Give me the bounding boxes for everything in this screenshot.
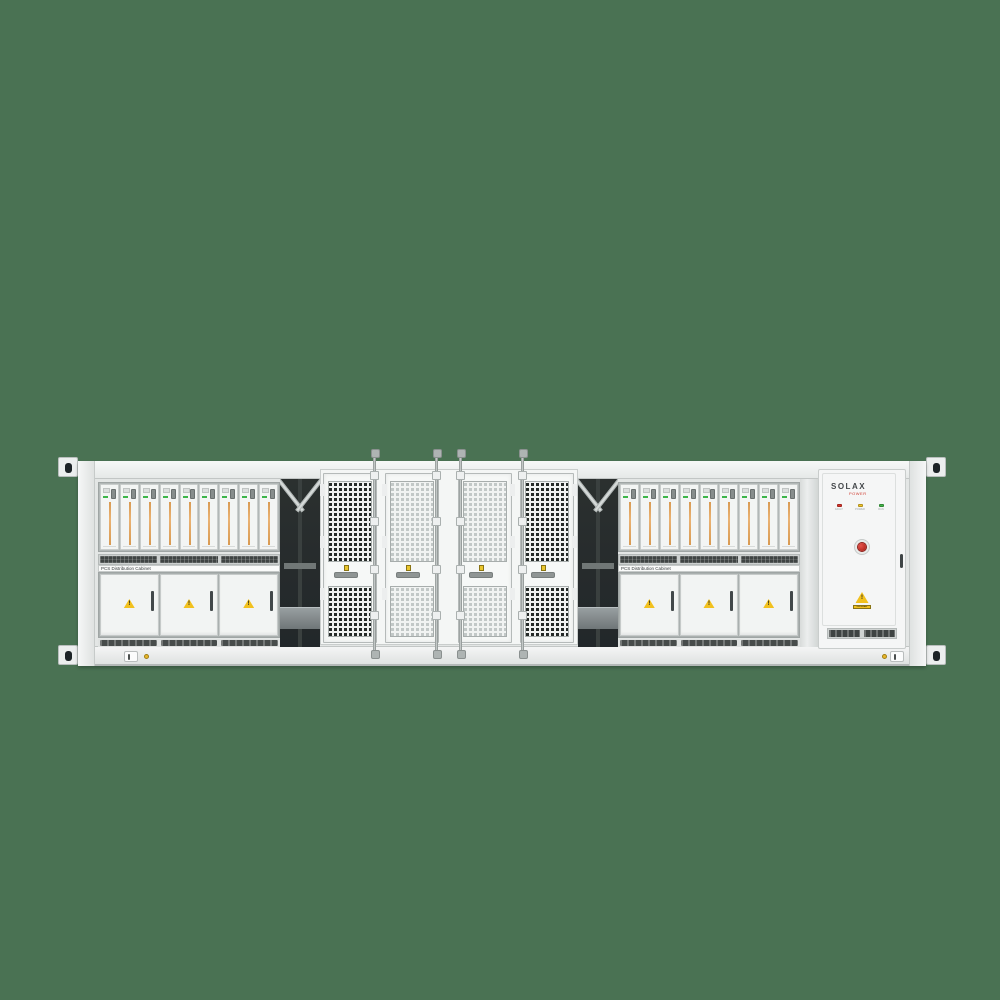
module-handle [691,489,696,499]
door-latch [324,562,376,586]
casting-hole-icon [65,463,72,473]
latch-handle [532,573,554,577]
battery-module [140,484,159,550]
module-status-led [262,496,267,498]
corner-casting [926,457,946,477]
interior-gap [578,479,618,647]
module-label [202,488,209,493]
warning-triangle-icon: ! [184,599,195,608]
cabinet-bottom-grille [827,628,897,639]
battery-module [759,484,778,550]
battery-module [100,484,119,550]
battery-module [199,484,218,550]
rod-bracket [370,611,379,620]
status-indicator: POWER [852,504,868,511]
module-label [623,488,630,493]
module-stripe [768,502,770,545]
module-handle [190,489,195,499]
module-label [663,488,670,493]
module-handle [790,489,795,499]
mesh-door [323,473,377,643]
rod-bracket [518,517,527,526]
module-handle [270,489,275,499]
rack-vent-grille [618,554,800,565]
cross-member [284,563,316,569]
cabinet-name-label: PCS Distribution Cabinet [618,565,800,572]
corner-casting [58,457,78,477]
panel-filler [800,479,818,647]
vent-segment [100,640,157,646]
module-label [722,488,729,493]
module-stripe [709,502,711,545]
door-handle-icon [671,591,674,611]
brand-logo-sub: POWER [849,491,867,496]
cabinet-door: ! [100,574,159,636]
module-handle [171,489,176,499]
battery-module [739,484,758,550]
mesh-panel [328,586,372,637]
door-hinges [382,484,387,632]
rod-bracket [456,517,465,526]
ground-point-icon [882,654,887,659]
module-handle [131,489,136,499]
module-handle [230,489,235,499]
warning-triangle-icon: ! [644,599,655,608]
mesh-panel [390,586,434,637]
rod-bracket [456,611,465,620]
vent-segment [620,556,677,563]
module-status-led [762,496,767,498]
door-handle-slot [900,554,903,568]
battery-module [660,484,679,550]
mesh-door [520,473,574,643]
access-plate [890,651,904,662]
latch-handle [335,573,357,577]
door-handle-icon [151,591,154,611]
door-latch [459,562,511,586]
cabinet-door: ! [160,574,219,636]
module-handle [651,489,656,499]
module-stripe [208,502,210,545]
distribution-cabinet-doors: !!! [618,572,800,638]
mesh-panel [525,586,569,637]
mesh-panel [525,481,569,562]
cabinet-door: ! [739,574,798,636]
access-plate [124,651,138,662]
brand-logo: SOLAX [831,482,866,491]
module-status-led [722,496,727,498]
door-hinges [572,484,577,632]
indicator-label: POWER [853,507,867,510]
corner-casting [926,645,946,665]
plate-latch-icon [894,654,896,660]
module-stripe [129,502,131,545]
battery-module [719,484,738,550]
door-lock-rod [373,453,376,655]
vent-segment [741,556,798,563]
vent-segment [741,640,798,646]
warning-sticker-icon [344,565,349,571]
latch-handle [470,573,492,577]
battery-module [160,484,179,550]
cabinet-name-label: PCS Distribution Cabinet [98,565,280,572]
module-status-led [123,496,128,498]
module-stripe [728,502,730,545]
module-stripe [109,502,111,545]
module-handle [631,489,636,499]
cable-duct [578,607,618,629]
mesh-panel [463,586,507,637]
module-stripe [748,502,750,545]
module-label [143,488,150,493]
cabinet-door: ! [620,574,679,636]
module-status-led [202,496,207,498]
door-lock-rod [459,453,462,655]
door-latch [521,562,573,586]
module-label [782,488,789,493]
module-handle [151,489,156,499]
module-status-led [222,496,227,498]
container-right-post [909,461,926,666]
mesh-door [385,473,439,643]
module-label [262,488,269,493]
module-label [703,488,710,493]
rod-bracket [518,565,527,574]
door-lock-rod [521,453,524,655]
module-status-led [663,496,668,498]
module-status-led [163,496,168,498]
solax-control-cabinet: SOLAX POWER FAULTPOWERRUN ! DANGER [818,469,906,649]
danger-label: DANGER [853,605,871,609]
interior-gap [280,479,320,647]
module-label [643,488,650,493]
module-handle [111,489,116,499]
module-status-led [703,496,708,498]
warning-sticker-icon [541,565,546,571]
battery-module [779,484,798,550]
battery-module [680,484,699,550]
indicator-row: FAULTPOWERRUN [831,504,889,511]
module-handle [671,489,676,499]
module-stripe [149,502,151,545]
door-handle-icon [790,591,793,611]
container-bottom-rail [78,646,926,666]
rod-bracket [370,565,379,574]
vent-segment [100,556,157,563]
module-rack [98,482,280,552]
module-handle [770,489,775,499]
module-stripe [248,502,250,545]
module-status-led [782,496,787,498]
door-hinges [320,484,325,632]
vent-segment [864,630,895,637]
distribution-cabinet-doors: !!! [98,572,280,638]
estop-red-cap-icon [858,543,866,551]
door-handle-icon [730,591,733,611]
module-handle [730,489,735,499]
module-stripe [228,502,230,545]
battery-module [180,484,199,550]
module-stripe [169,502,171,545]
rod-bracket [432,517,441,526]
vent-segment [221,640,278,646]
rod-bracket [432,611,441,620]
rod-bracket [370,471,379,480]
module-status-led [242,496,247,498]
warning-triangle-icon: ! [856,592,869,603]
rod-bracket [370,517,379,526]
left-pcs-rack-section: PCS Distribution Cabinet !!! [98,482,280,647]
module-label [683,488,690,493]
ground-point-icon [144,654,149,659]
vent-segment [160,556,217,563]
rod-bracket [432,471,441,480]
cross-member [582,563,614,569]
warning-triangle-icon: ! [763,599,774,608]
module-handle [710,489,715,499]
rack-vent-grille [98,554,280,565]
casting-hole-icon [65,651,72,661]
module-label [242,488,249,493]
module-label [183,488,190,493]
module-label [222,488,229,493]
module-status-led [103,496,108,498]
mesh-door [458,473,512,643]
warning-triangle-icon: ! [243,599,254,608]
mesh-panel [463,481,507,562]
indicator-label: RUN [874,507,888,510]
door-handle-icon [270,591,273,611]
module-status-led [143,496,148,498]
rod-bracket [456,471,465,480]
module-stripe [649,502,651,545]
casting-hole-icon [933,463,940,473]
high-voltage-warning: ! DANGER [852,586,872,609]
status-indicator: RUN [873,504,889,511]
module-status-led [183,496,188,498]
door-lock-rod [435,453,438,655]
battery-module [219,484,238,550]
cabinet-door: ! [219,574,278,636]
battery-module [700,484,719,550]
battery-module [259,484,278,550]
door-handle-icon [210,591,213,611]
status-indicator: FAULT [831,504,847,511]
under-cabinet-vent [98,639,280,647]
module-stripe [629,502,631,545]
cable-duct [280,607,320,629]
rod-bracket [456,565,465,574]
battery-module [239,484,258,550]
module-label [742,488,749,493]
mesh-panel [328,481,372,562]
module-stripe [669,502,671,545]
product-render-stage: PCS Distribution Cabinet !!! PCS Distrib… [0,0,1000,1000]
door-hinges [510,484,515,632]
module-status-led [683,496,688,498]
battery-module [620,484,639,550]
indicator-label: FAULT [832,507,846,510]
container-left-post [78,461,95,666]
module-label [163,488,170,493]
casting-hole-icon [933,651,940,661]
under-cabinet-vent [618,639,800,647]
battery-module [640,484,659,550]
battery-module [120,484,139,550]
module-handle [750,489,755,499]
module-label [762,488,769,493]
corner-casting [58,645,78,665]
module-handle [210,489,215,499]
door-latch [386,562,438,586]
rod-bracket [518,471,527,480]
emergency-stop-button [855,540,869,554]
right-pcs-rack-section: PCS Distribution Cabinet !!! [618,482,800,647]
mesh-panel [390,481,434,562]
warning-triangle-icon: ! [704,599,715,608]
warning-triangle-icon: ! [124,599,135,608]
warning-sticker-icon [406,565,411,571]
module-stripe [268,502,270,545]
latch-handle [397,573,419,577]
cabinet-door: ! [680,574,739,636]
warning-sticker-icon [479,565,484,571]
module-label [123,488,130,493]
vent-segment [680,556,737,563]
vent-segment [829,630,860,637]
rod-bracket [518,611,527,620]
module-status-led [742,496,747,498]
module-status-led [643,496,648,498]
module-stripe [788,502,790,545]
module-rack [618,482,800,552]
rod-bracket [432,565,441,574]
module-label [103,488,110,493]
module-handle [250,489,255,499]
vent-segment [161,640,218,646]
module-status-led [623,496,628,498]
plate-latch-icon [128,654,130,660]
vent-segment [620,640,677,646]
module-stripe [189,502,191,545]
vent-segment [221,556,278,563]
vent-segment [681,640,738,646]
module-stripe [689,502,691,545]
